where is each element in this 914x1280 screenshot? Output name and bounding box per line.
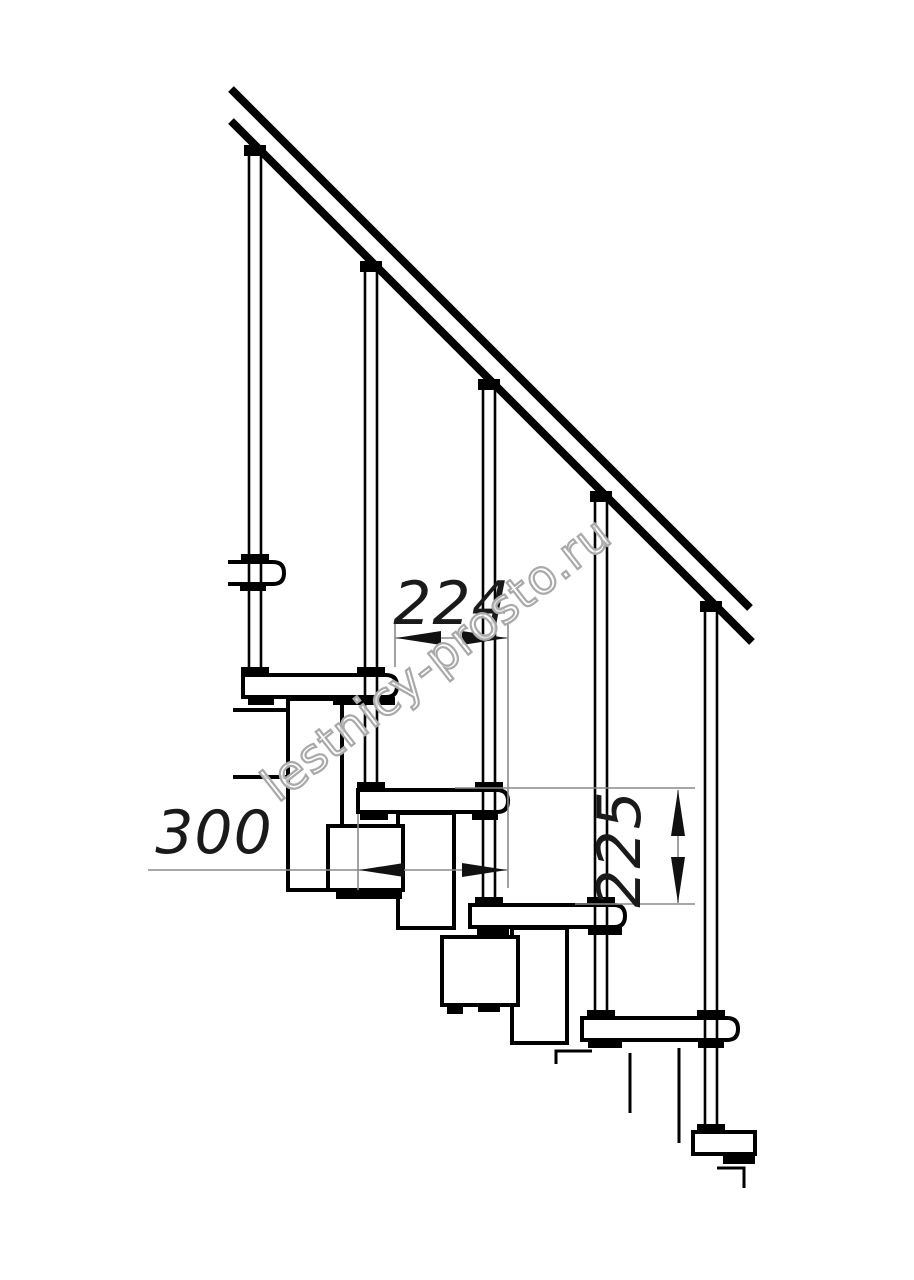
handrail-bottom-line xyxy=(231,121,752,642)
arrowhead-down xyxy=(671,857,685,903)
handrail xyxy=(231,89,752,642)
tread-nub xyxy=(477,927,509,935)
tread-5 xyxy=(582,1018,738,1040)
baluster-collar xyxy=(697,1124,725,1133)
arrowhead-right xyxy=(462,863,507,877)
break-line-hook xyxy=(717,1168,744,1188)
module-box-1-foot xyxy=(336,890,402,899)
baluster-collar xyxy=(241,554,269,563)
baluster-collar xyxy=(697,1010,725,1019)
baluster-collar xyxy=(475,897,503,906)
tread-1 xyxy=(228,562,284,584)
baluster-5 xyxy=(700,601,722,1133)
dimension-label-225: 225 xyxy=(585,790,655,908)
break-line-hook xyxy=(556,1051,592,1064)
module-column-3 xyxy=(512,928,567,1043)
module-box-2 xyxy=(442,937,518,1005)
baluster-1 xyxy=(244,145,266,676)
module-box-1 xyxy=(328,826,403,890)
dimension-label-300: 300 xyxy=(155,798,273,868)
handrail-top-line xyxy=(231,89,750,608)
module-box-2-foot xyxy=(478,1005,500,1012)
tread-3 xyxy=(358,790,508,812)
tread-nub xyxy=(248,697,274,705)
baluster-collar xyxy=(241,667,269,676)
tread-nub xyxy=(588,1040,622,1048)
arrowhead-up xyxy=(671,790,685,836)
baluster-collar xyxy=(357,782,385,791)
tread-nub xyxy=(698,1040,724,1048)
module-connector-bar xyxy=(723,1155,755,1164)
tread-nub xyxy=(588,927,622,935)
staircase-technical-drawing: 224 300 225 lestnicy-prosto.ru xyxy=(0,0,914,1280)
watermark-text: lestnicy-prosto.ru xyxy=(251,506,622,812)
baluster-collar xyxy=(587,1010,615,1019)
module-box-2-foot xyxy=(447,1005,463,1014)
tread-6 xyxy=(693,1132,755,1154)
baluster-collar xyxy=(475,782,503,791)
tread-nub xyxy=(360,812,388,820)
drawing-canvas: 224 300 225 lestnicy-prosto.ru xyxy=(0,0,914,1280)
